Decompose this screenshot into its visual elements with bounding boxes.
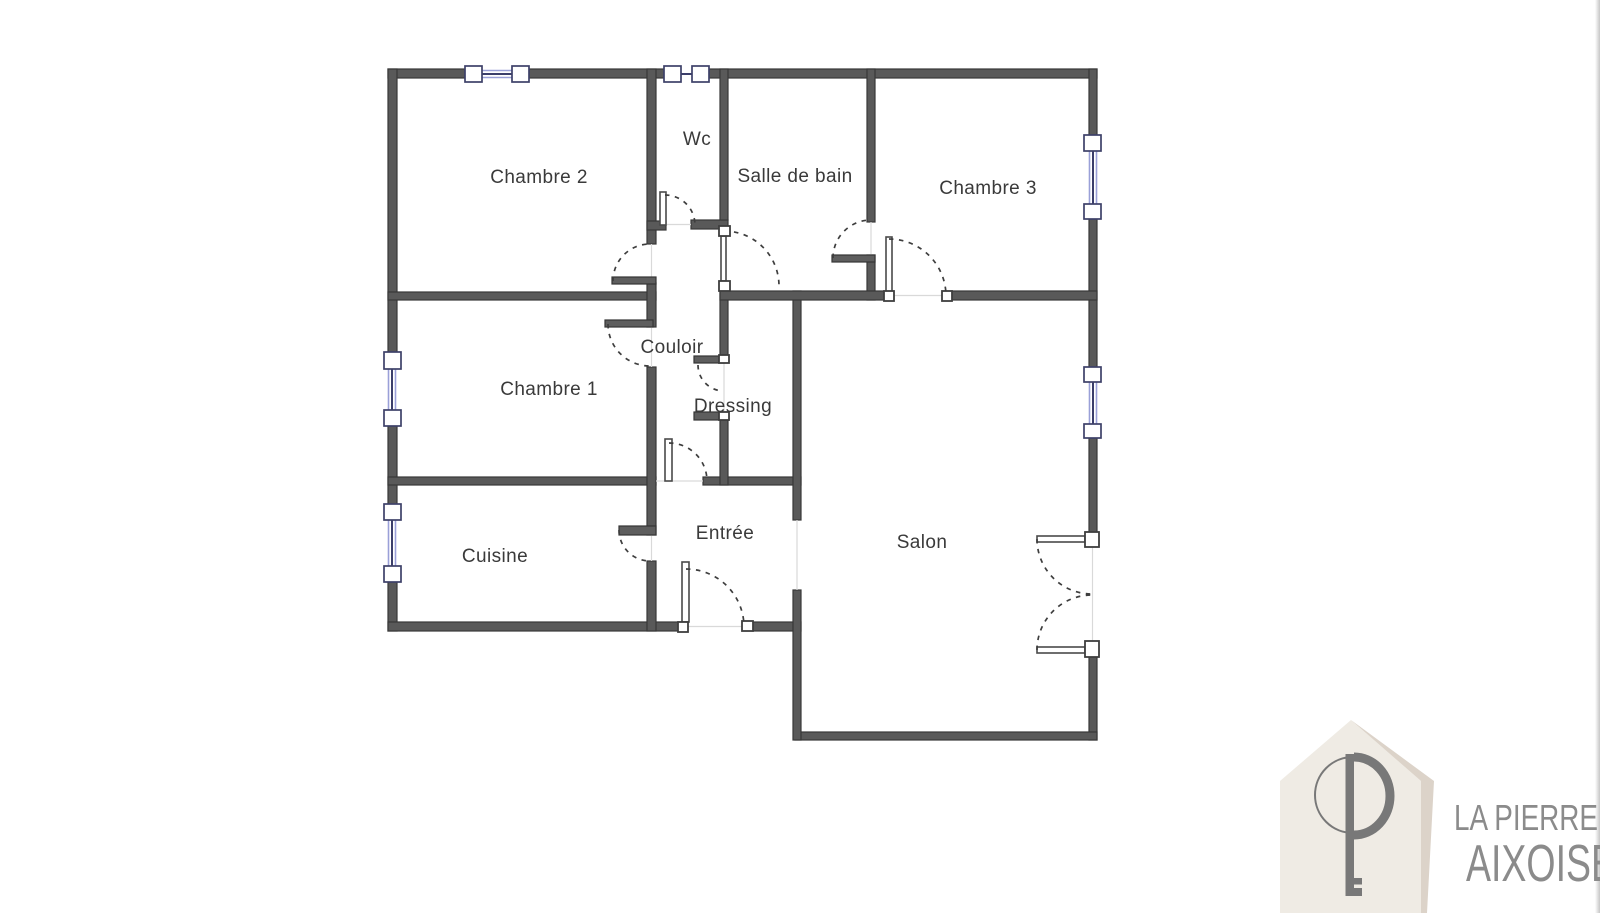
svg-text:Chambre 2: Chambre 2 [490,167,588,188]
svg-text:Chambre 1: Chambre 1 [500,379,598,400]
svg-text:Wc: Wc [683,129,711,150]
svg-text:Salle de bain: Salle de bain [737,166,852,187]
svg-text:Dressing: Dressing [694,396,772,417]
svg-text:Chambre 3: Chambre 3 [939,178,1037,199]
svg-text:Couloir: Couloir [641,337,704,358]
svg-text:Cuisine: Cuisine [462,546,528,567]
svg-text:LA PIERRE: LA PIERRE [1454,797,1598,838]
svg-text:Entrée: Entrée [696,523,754,544]
svg-text:Salon: Salon [897,532,948,553]
svg-text:AIXOISE: AIXOISE [1466,835,1600,893]
